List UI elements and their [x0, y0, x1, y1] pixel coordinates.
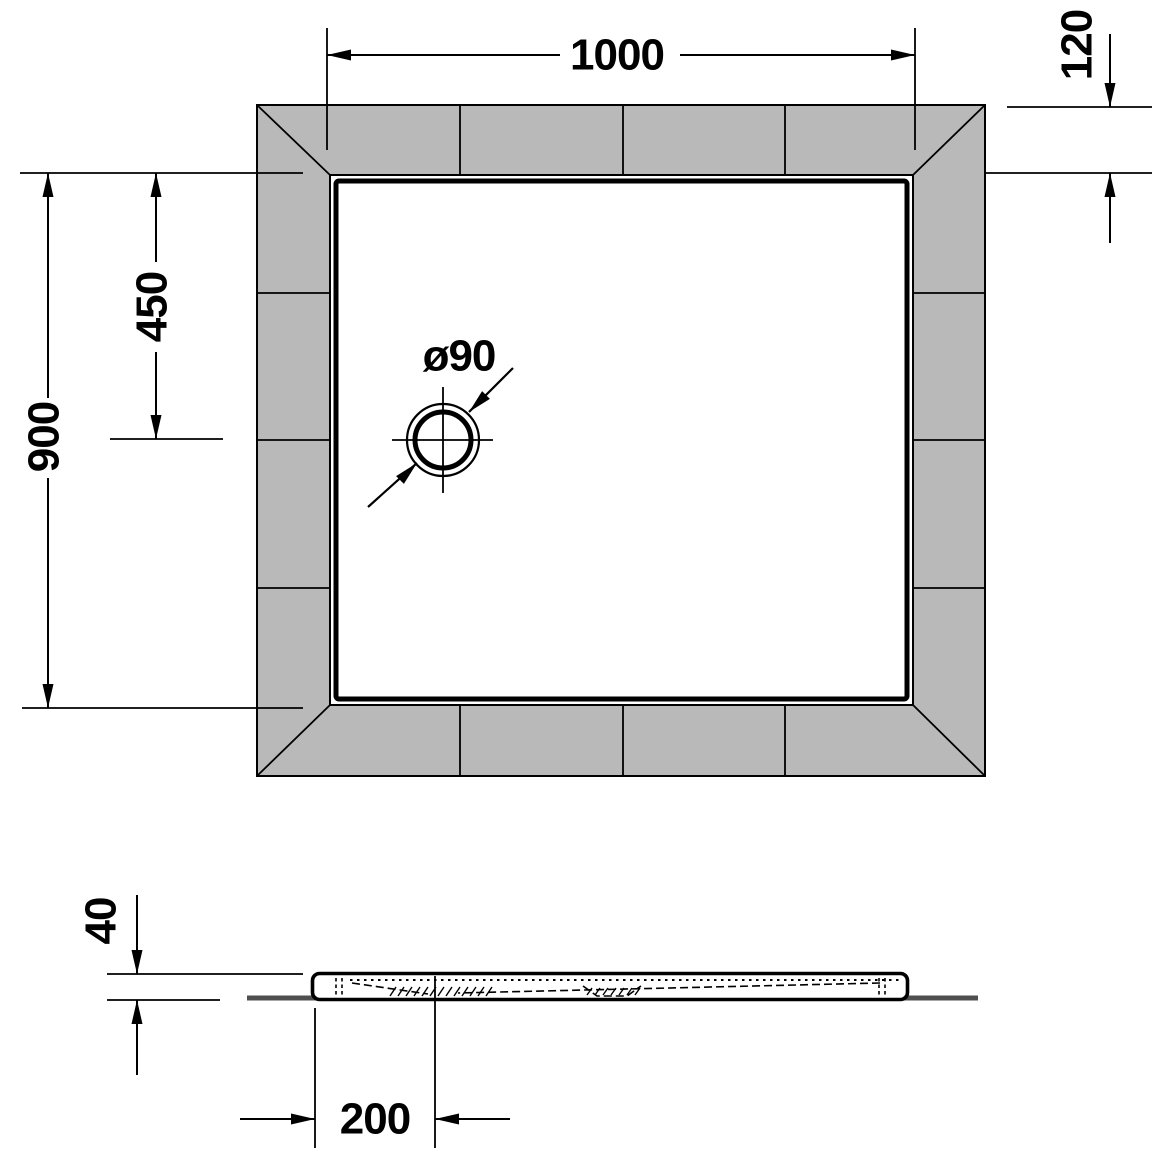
dimension-height-label: 40: [77, 898, 126, 945]
dimension-width-label: 1000: [570, 31, 664, 80]
side-view: 40 200: [77, 895, 979, 1148]
dimension-border-label: 120: [1053, 10, 1102, 80]
arrow-900-bottom: [43, 684, 54, 708]
arrow-120-bottom: [1105, 173, 1116, 197]
dimension-height-40: 40: [77, 895, 304, 1075]
dimension-border-120: 120: [985, 10, 1152, 243]
arrow-40-top: [132, 950, 143, 974]
dimension-drain-offset-200: 200: [240, 1008, 510, 1148]
top-view: ø90 1000 120 450: [20, 10, 1153, 776]
dimension-drain-offset-label: 200: [340, 1095, 410, 1144]
arrow-900-top: [43, 173, 54, 197]
dimension-drain-center-450: 450: [110, 173, 223, 439]
extension-lines-120: [985, 107, 1152, 173]
arrow-200-right: [435, 1114, 459, 1125]
arrow-40-bottom: [132, 1000, 143, 1024]
drain-diameter-label: ø90: [423, 332, 496, 381]
arrow-1000-left: [327, 50, 351, 61]
arrow-1000-right: [891, 50, 915, 61]
dimension-depth-label: 900: [20, 402, 69, 472]
arrow-450-top: [151, 173, 162, 197]
technical-drawing-canvas: ø90 1000 120 450: [0, 0, 1167, 1176]
arrow-450-bottom: [151, 415, 162, 439]
arrow-200-left: [291, 1114, 315, 1125]
arrow-120-top: [1105, 83, 1116, 107]
dimension-drain-center-label: 450: [128, 272, 177, 342]
